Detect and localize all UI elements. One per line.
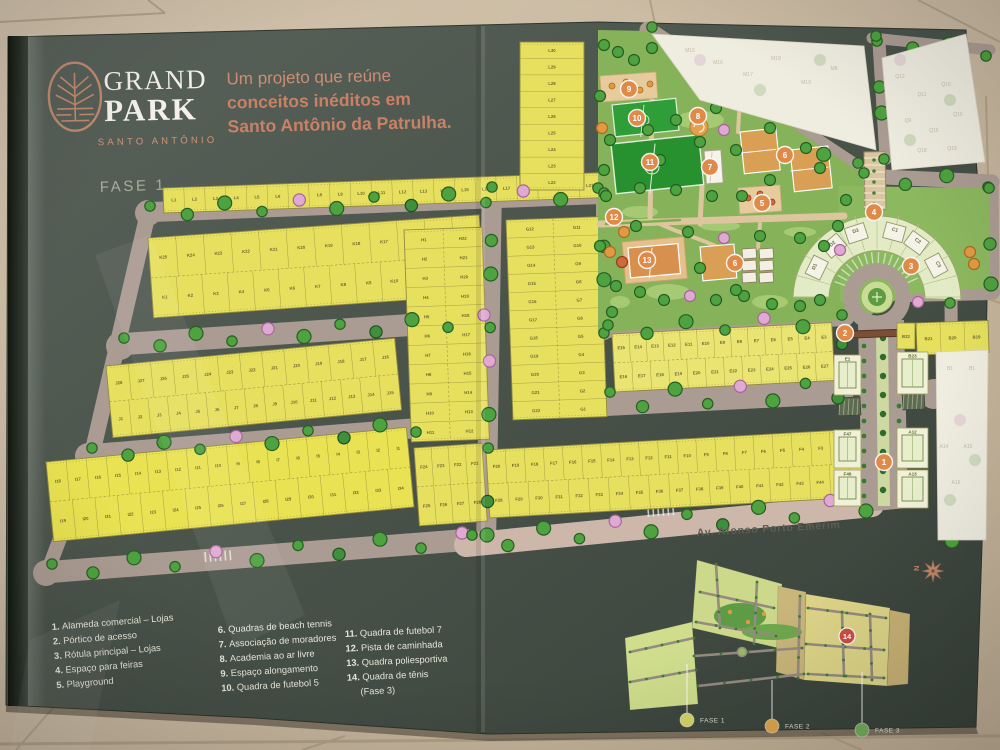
scene-svg: L1L2L3L4L5L6L7L8L9L10L11L12L13L14L15L16L… bbox=[0, 0, 1000, 750]
photo-overlays bbox=[0, 0, 1000, 750]
brochure-photo: L1L2L3L4L5L6L7L8L9L10L11L12L13L14L15L16L… bbox=[0, 0, 1000, 750]
